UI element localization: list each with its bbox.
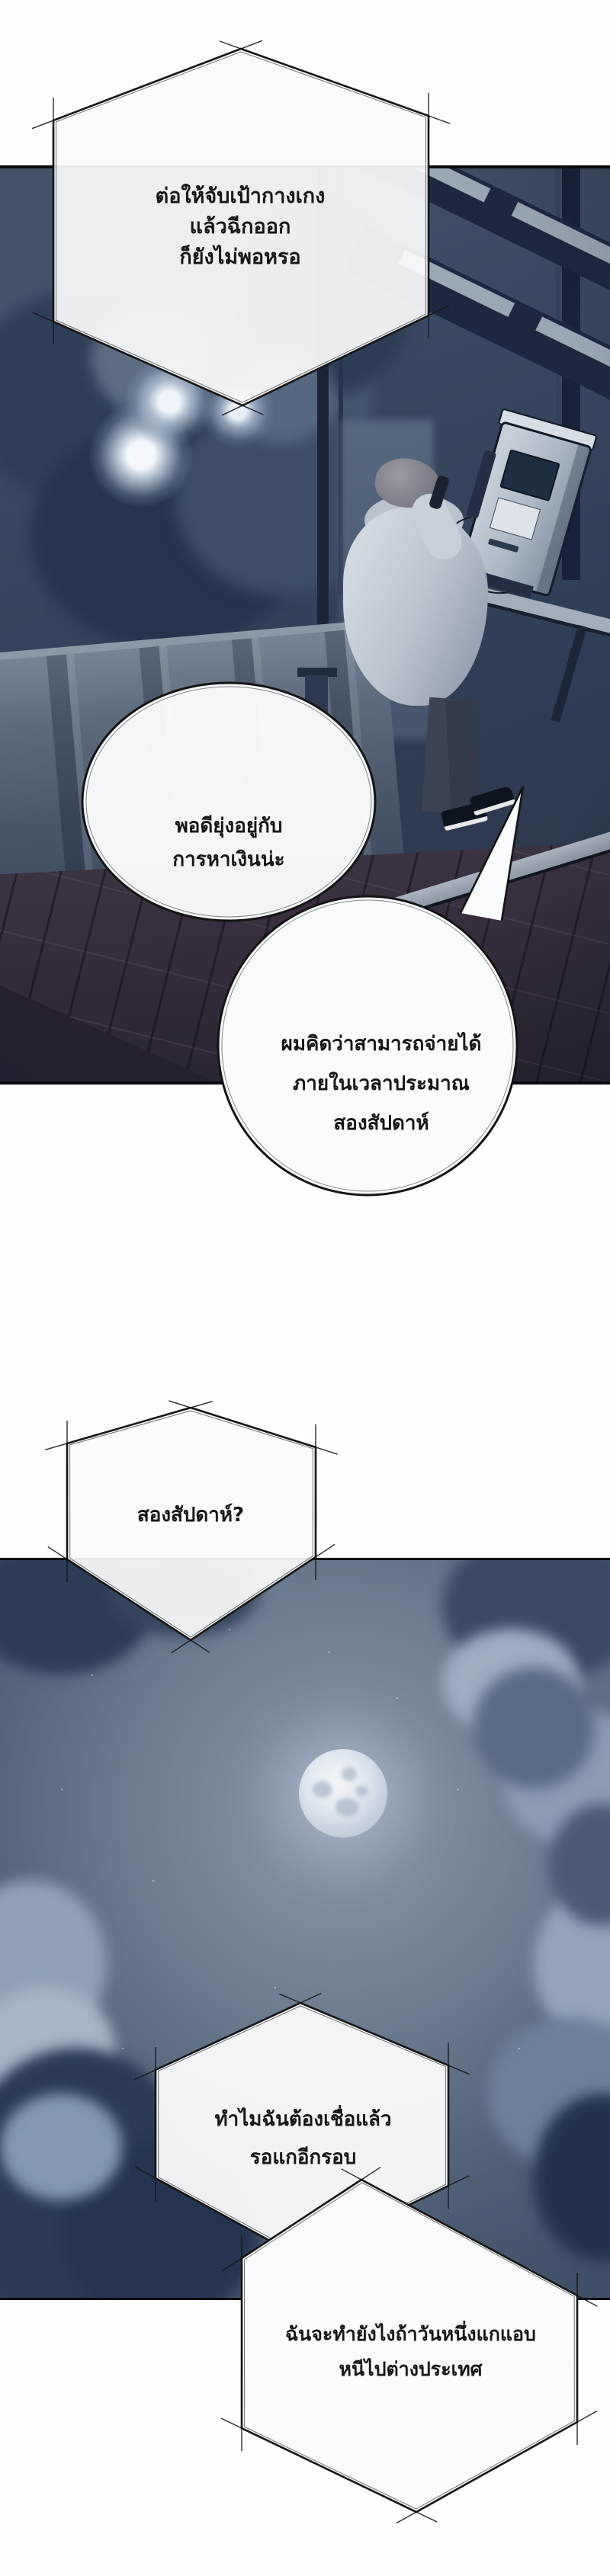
speech-bubble-3-text: ผมคิดว่าสามารถจ่ายได้ ภายในเวลาประมาณ สอ… xyxy=(229,1024,534,1143)
speech-line: หนีไปต่างประเทศ xyxy=(244,2352,577,2387)
speech-line: สองสัปดาห์? xyxy=(53,1498,328,1532)
speech-line: ฉันจะทำยังไงถ้าวันหนึ่งแกแอบ xyxy=(244,2317,577,2352)
speech-bubble-1-sketch-tick xyxy=(222,402,249,415)
speech-bubble-1-sketch-tick xyxy=(234,40,262,51)
speech-bubble-6-text: ฉันจะทำยังไงถ้าวันหนึ่งแกแอบ หนีไปต่างปร… xyxy=(244,2317,577,2387)
speech-line: รอแกอีกรอบ xyxy=(152,2139,454,2177)
speech-line: ก็ยังไม่พอหรอ xyxy=(69,242,412,273)
speech-bubble-6-sketch-tick xyxy=(396,2508,423,2523)
speech-bubbles-layer xyxy=(0,0,610,2576)
speech-bubble-1-sketch-tick xyxy=(220,41,249,51)
speech-bubble-5-sketch-tick xyxy=(279,1994,307,2006)
speech-bubble-4-sketch-tick xyxy=(172,1636,197,1652)
speech-bubble-4-sketch-tick xyxy=(169,1401,197,1410)
speech-line: ต่อให้จับเป้ากางเกง xyxy=(69,181,412,212)
speech-line: พอดียุ่งอยู่กับ xyxy=(84,809,374,843)
speech-bubble-5-text: ทำไมฉันต้องเชื่อแล้ว รอแกอีกรอบ xyxy=(152,2100,454,2177)
speech-bubble-1-sketch-tick xyxy=(236,402,264,415)
speech-line: สองสัปดาห์ xyxy=(229,1104,534,1143)
speech-bubble-2-text: พอดียุ่งอยู่กับ การหาเงินน่ะ xyxy=(84,809,374,876)
speech-bubble-4-sketch-tick xyxy=(185,1636,210,1653)
speech-bubble-1-text: ต่อให้จับเป้ากางเกง แล้วฉีกออก ก็ยังไม่พ… xyxy=(69,181,412,273)
speech-bubble-4-text: สองสัปดาห์? xyxy=(53,1498,328,1532)
speech-line: ภายในเวลาประมาณ xyxy=(229,1064,534,1104)
speech-line: ทำไมฉันต้องเชื่อแล้ว xyxy=(152,2100,454,2139)
speech-bubble-2 xyxy=(82,683,375,921)
speech-bubble-6-sketch-tick xyxy=(409,2509,437,2522)
speech-line: แล้วฉีกออก xyxy=(69,212,412,242)
comic-page: ต่อให้จับเป้ากางเกง แล้วฉีกออก ก็ยังไม่พ… xyxy=(0,0,610,2576)
speech-line: การหาเงินน่ะ xyxy=(84,843,374,876)
speech-bubble-5-sketch-tick xyxy=(294,1993,321,2006)
speech-bubble-4-sketch-tick xyxy=(183,1402,212,1410)
speech-line: ผมคิดว่าสามารถจ่ายได้ xyxy=(229,1024,534,1064)
